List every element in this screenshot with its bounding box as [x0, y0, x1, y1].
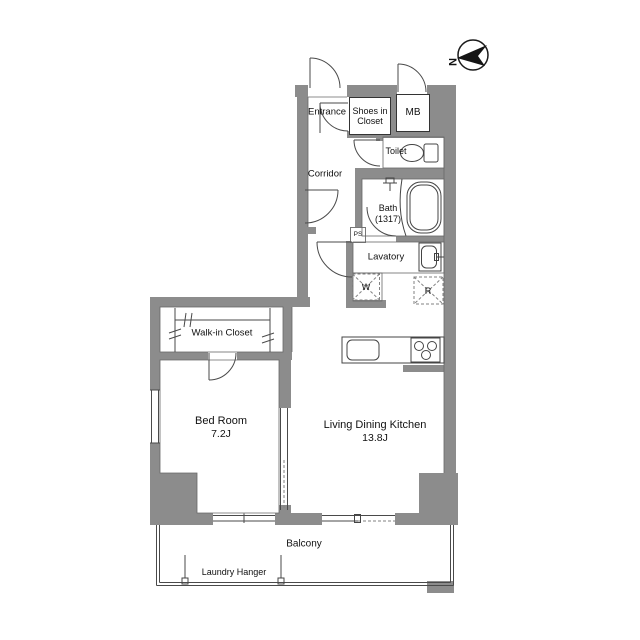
wall-segment	[283, 307, 292, 352]
meter-box: MB	[396, 94, 430, 132]
entrance-door-swing	[310, 58, 340, 88]
ldk-balcony-window	[322, 515, 395, 523]
wall-segment	[150, 443, 160, 473]
bedroom-side-window	[150, 390, 160, 443]
wall-segment	[396, 236, 444, 242]
floor-plan: Shoes in Closet MB PS	[0, 0, 640, 640]
wall-segment	[297, 227, 316, 234]
wall-segment	[346, 241, 353, 307]
wall-segment	[275, 513, 322, 525]
wall-segment	[395, 513, 458, 525]
wall-segment	[355, 168, 444, 179]
room-label-laundry-hanger: Laundry Hanger	[202, 567, 267, 577]
wall-segment	[160, 352, 208, 360]
washer-label: W	[362, 282, 371, 292]
shoes-in-closet-box: Shoes in Closet	[349, 97, 391, 135]
wall-segment	[355, 168, 362, 236]
wall-segment	[347, 85, 397, 97]
wall-segment	[444, 85, 456, 473]
room-size-bedroom: 7.2J	[211, 428, 231, 440]
compass-icon	[457, 40, 488, 70]
wall-segment	[150, 473, 197, 513]
wall-segment	[403, 365, 456, 372]
room-label-toilet: Toilet	[385, 146, 406, 156]
shower-faucet-icon	[383, 178, 397, 191]
toilet-door-swing	[354, 140, 380, 166]
corridor-door-swing	[305, 190, 338, 223]
room-label-walk-in-closet: Walk-in Closet	[192, 328, 253, 339]
bedroom-balcony-window	[213, 514, 275, 524]
wall-segment	[427, 581, 454, 593]
room-label-lavatory: Lavatory	[368, 252, 404, 263]
kitchen-counter-icon	[342, 337, 444, 363]
pipe-space-box: PS	[350, 227, 366, 243]
room-size-ldk: 13.8J	[362, 432, 388, 444]
shoes-in-closet-label-line2: Closet	[357, 116, 383, 126]
wall-segment	[297, 85, 308, 298]
room-label-bath: Bath	[379, 203, 398, 213]
room-label-corridor: Corridor	[308, 169, 342, 180]
wall-segment	[346, 300, 386, 308]
pipe-space-label: PS	[354, 231, 363, 238]
room-size-bath: (1317)	[375, 214, 401, 224]
closet-door-swing	[209, 353, 236, 380]
shoes-in-closet-label-line1: Shoes in	[352, 106, 387, 116]
vanity-sink-icon	[419, 243, 444, 271]
wall-segment	[150, 307, 160, 352]
room-label-entrance: Entrance	[308, 107, 346, 118]
wall-segment	[279, 352, 291, 408]
wall-segment	[150, 352, 160, 390]
room-label-balcony: Balcony	[286, 539, 322, 550]
wall-segment	[150, 513, 213, 525]
refrigerator-label: R	[425, 286, 432, 296]
compass-north-label: N	[446, 58, 458, 66]
wall-segment	[150, 297, 310, 307]
bedroom-ldk-sliding-door	[281, 408, 288, 510]
bathtub-icon	[400, 179, 441, 236]
room-label-bedroom: Bed Room	[195, 415, 247, 427]
meter-box-label: MB	[406, 107, 421, 119]
meter-box-door-swing	[398, 64, 426, 92]
room-label-ldk: Living Dining Kitchen	[324, 419, 427, 431]
